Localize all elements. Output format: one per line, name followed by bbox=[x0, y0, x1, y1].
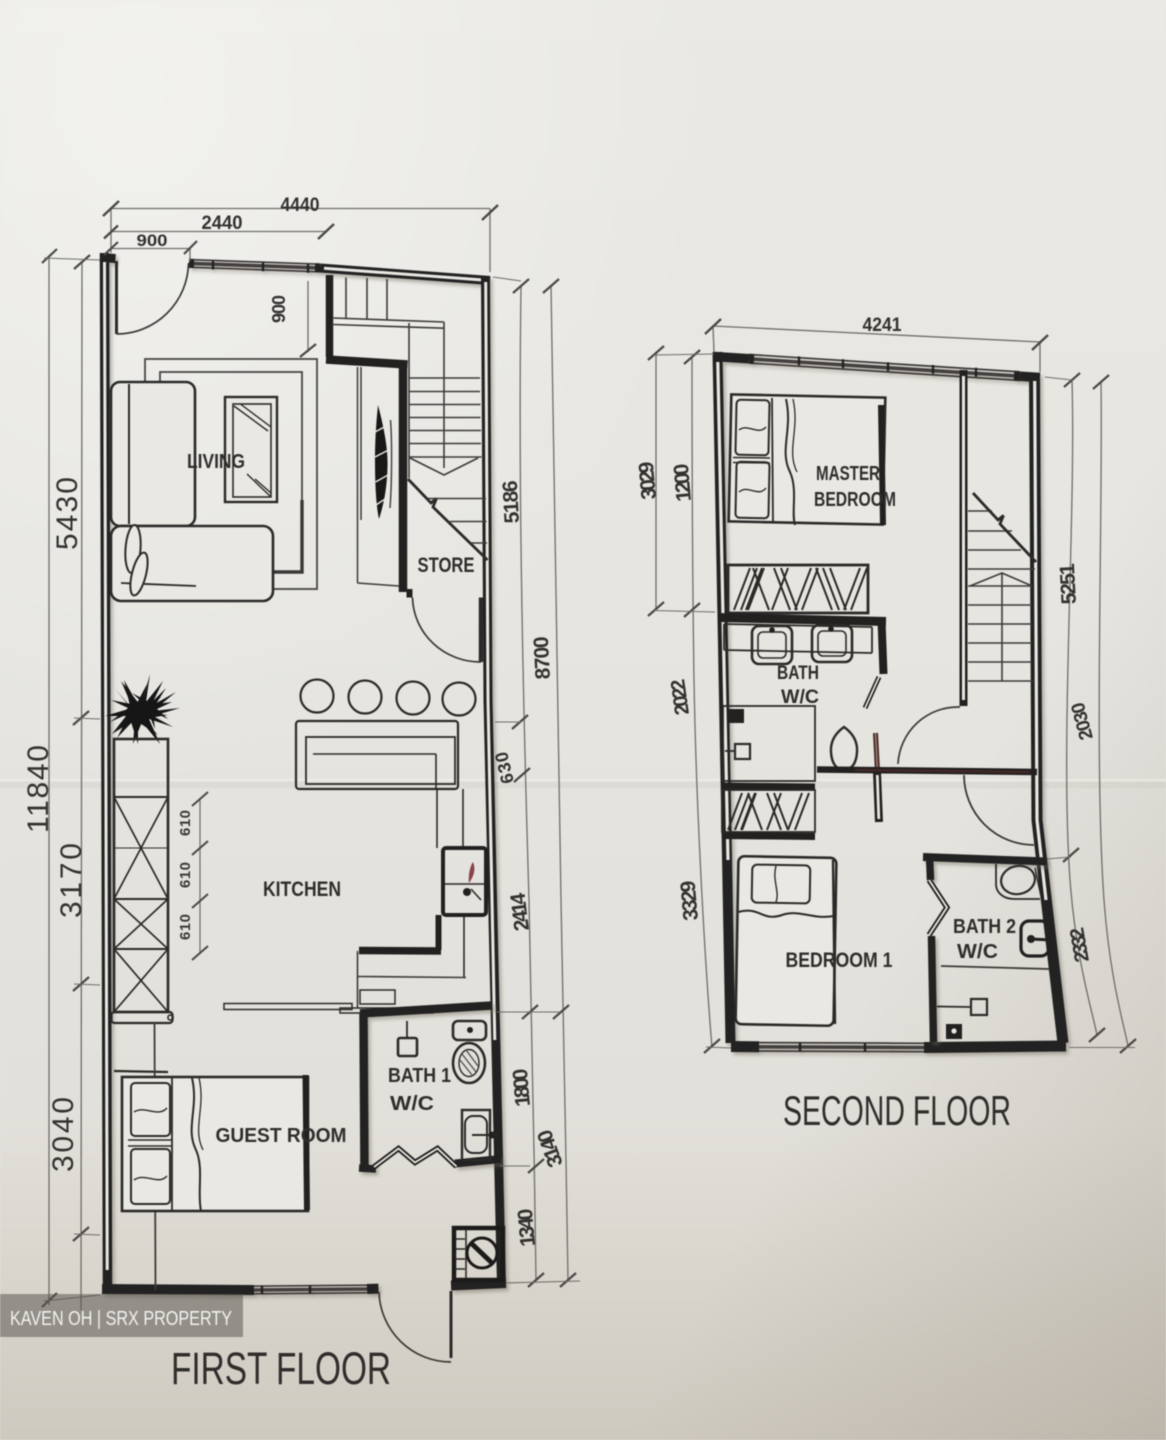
svg-text:5251: 5251 bbox=[1056, 562, 1081, 604]
svg-text:610: 610 bbox=[177, 862, 194, 888]
svg-text:MASTER: MASTER bbox=[816, 463, 880, 485]
svg-text:2440: 2440 bbox=[202, 213, 243, 234]
svg-text:610: 610 bbox=[177, 914, 194, 940]
svg-text:BATH 1: BATH 1 bbox=[388, 1065, 451, 1087]
svg-text:900: 900 bbox=[269, 295, 289, 323]
svg-text:1200: 1200 bbox=[670, 463, 696, 503]
svg-text:BATH 2: BATH 2 bbox=[953, 916, 1016, 938]
svg-text:4241: 4241 bbox=[863, 315, 902, 336]
svg-text:BATH: BATH bbox=[777, 663, 819, 684]
svg-text:W/C: W/C bbox=[957, 941, 998, 963]
svg-text:1800: 1800 bbox=[509, 1068, 535, 1108]
svg-text:4440: 4440 bbox=[281, 195, 320, 216]
svg-text:W/C: W/C bbox=[390, 1093, 434, 1115]
svg-text:610: 610 bbox=[177, 810, 194, 836]
svg-text:11840: 11840 bbox=[22, 745, 55, 833]
svg-text:2414: 2414 bbox=[506, 891, 533, 932]
svg-text:3029: 3029 bbox=[635, 461, 661, 501]
svg-text:W/C: W/C bbox=[781, 687, 819, 708]
svg-text:BEDROOM: BEDROOM bbox=[814, 489, 896, 511]
svg-text:BEDROOM 1: BEDROOM 1 bbox=[786, 949, 893, 972]
svg-text:1340: 1340 bbox=[514, 1208, 540, 1248]
svg-text:KAVEN OH | SRX PROPERTY: KAVEN OH | SRX PROPERTY bbox=[10, 1308, 232, 1330]
svg-text:8700: 8700 bbox=[530, 636, 555, 680]
svg-text:900: 900 bbox=[137, 231, 168, 250]
svg-text:FIRST FLOOR: FIRST FLOOR bbox=[171, 1343, 391, 1394]
svg-text:3329: 3329 bbox=[677, 880, 703, 922]
svg-text:STORE: STORE bbox=[418, 554, 475, 577]
svg-text:SECOND FLOOR: SECOND FLOOR bbox=[783, 1087, 1011, 1134]
svg-text:LIVING: LIVING bbox=[187, 451, 245, 473]
svg-text:KITCHEN: KITCHEN bbox=[263, 878, 341, 901]
svg-text:GUEST ROOM: GUEST ROOM bbox=[216, 1125, 347, 1147]
svg-text:5186: 5186 bbox=[499, 480, 524, 524]
